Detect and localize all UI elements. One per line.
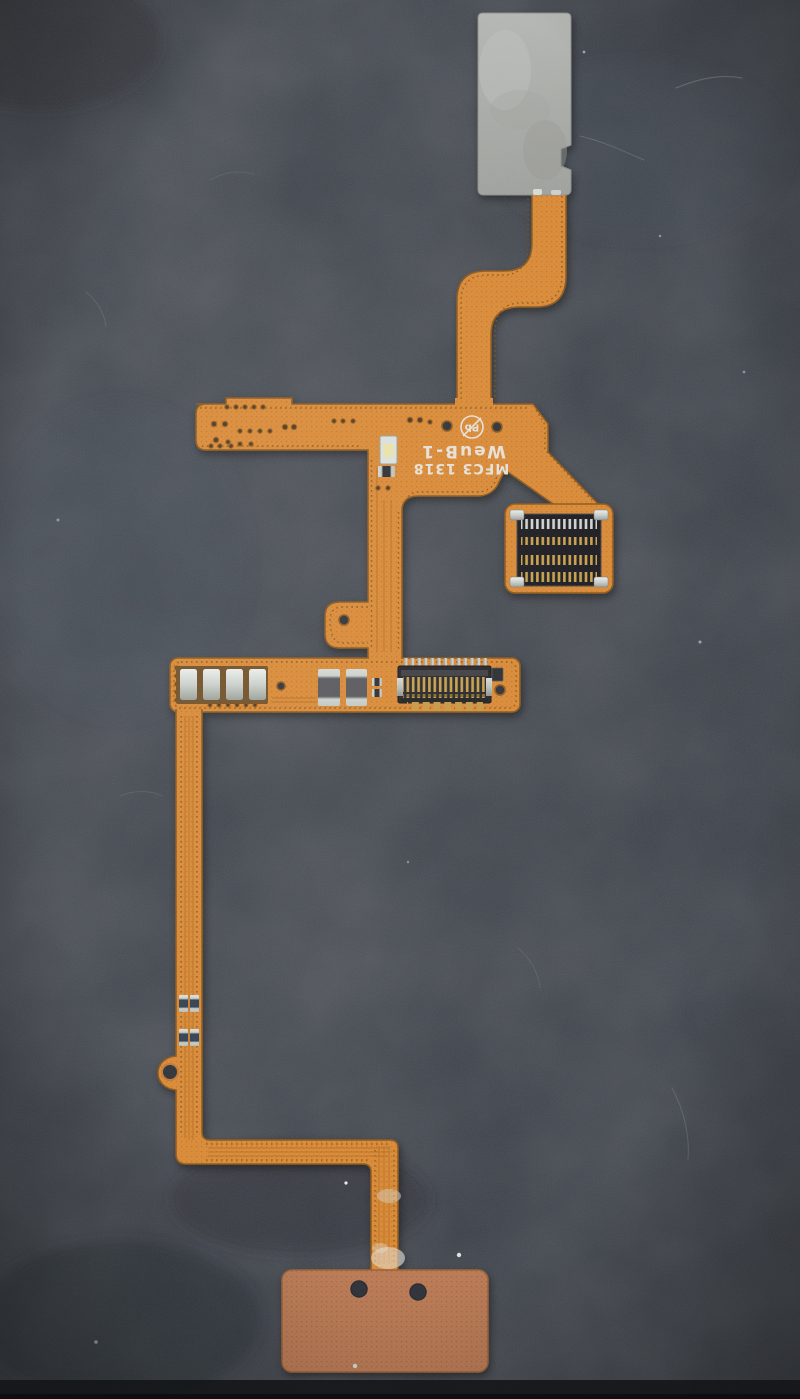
- vignette: [0, 0, 800, 1399]
- photo-canvas: Pb WeuB-1 MFC3 1318: [0, 0, 800, 1399]
- bottom-edge-shadow: [0, 1394, 800, 1399]
- photo-stage: Pb WeuB-1 MFC3 1318: [0, 0, 800, 1399]
